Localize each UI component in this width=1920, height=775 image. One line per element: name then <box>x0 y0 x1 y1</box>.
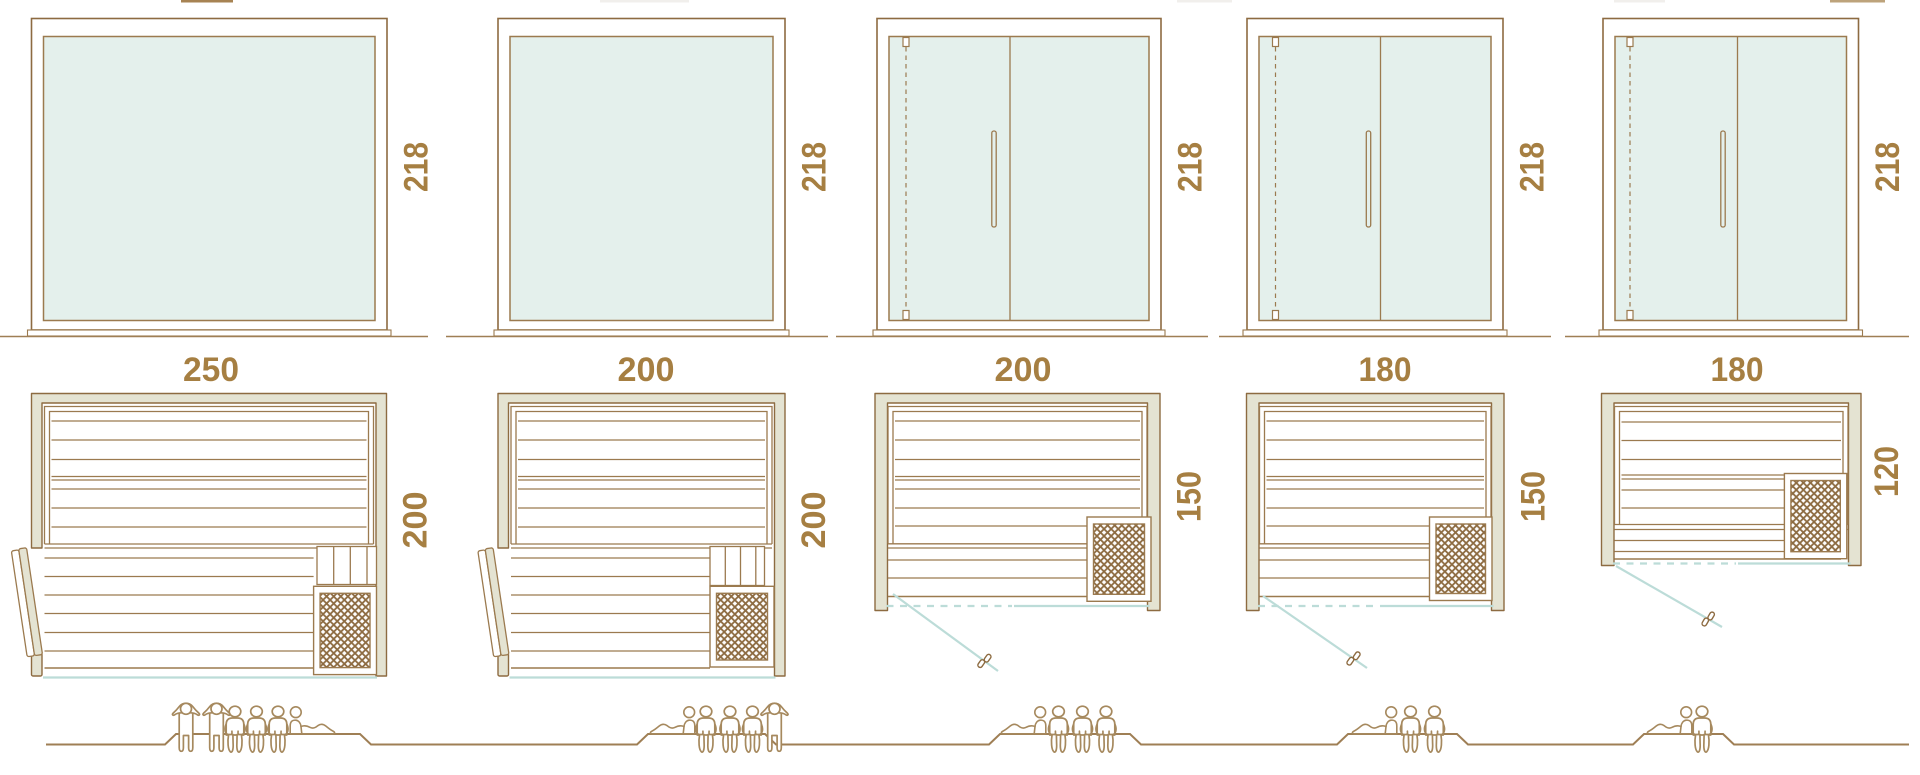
svg-text:180: 180 <box>1711 351 1764 389</box>
svg-text:218: 218 <box>1869 142 1907 192</box>
svg-text:150: 150 <box>1515 471 1553 522</box>
svg-text:180: 180 <box>1359 351 1412 389</box>
svg-text:200: 200 <box>995 351 1052 389</box>
svg-text:218: 218 <box>796 142 834 192</box>
svg-text:218: 218 <box>398 142 436 192</box>
svg-text:200: 200 <box>397 492 435 549</box>
svg-text:218: 218 <box>1172 142 1210 192</box>
svg-text:120: 120 <box>1868 446 1906 497</box>
svg-text:200: 200 <box>618 351 675 389</box>
svg-text:150: 150 <box>1171 471 1209 522</box>
svg-text:218: 218 <box>1514 142 1552 192</box>
svg-text:200: 200 <box>795 492 833 549</box>
svg-text:250: 250 <box>183 351 239 389</box>
